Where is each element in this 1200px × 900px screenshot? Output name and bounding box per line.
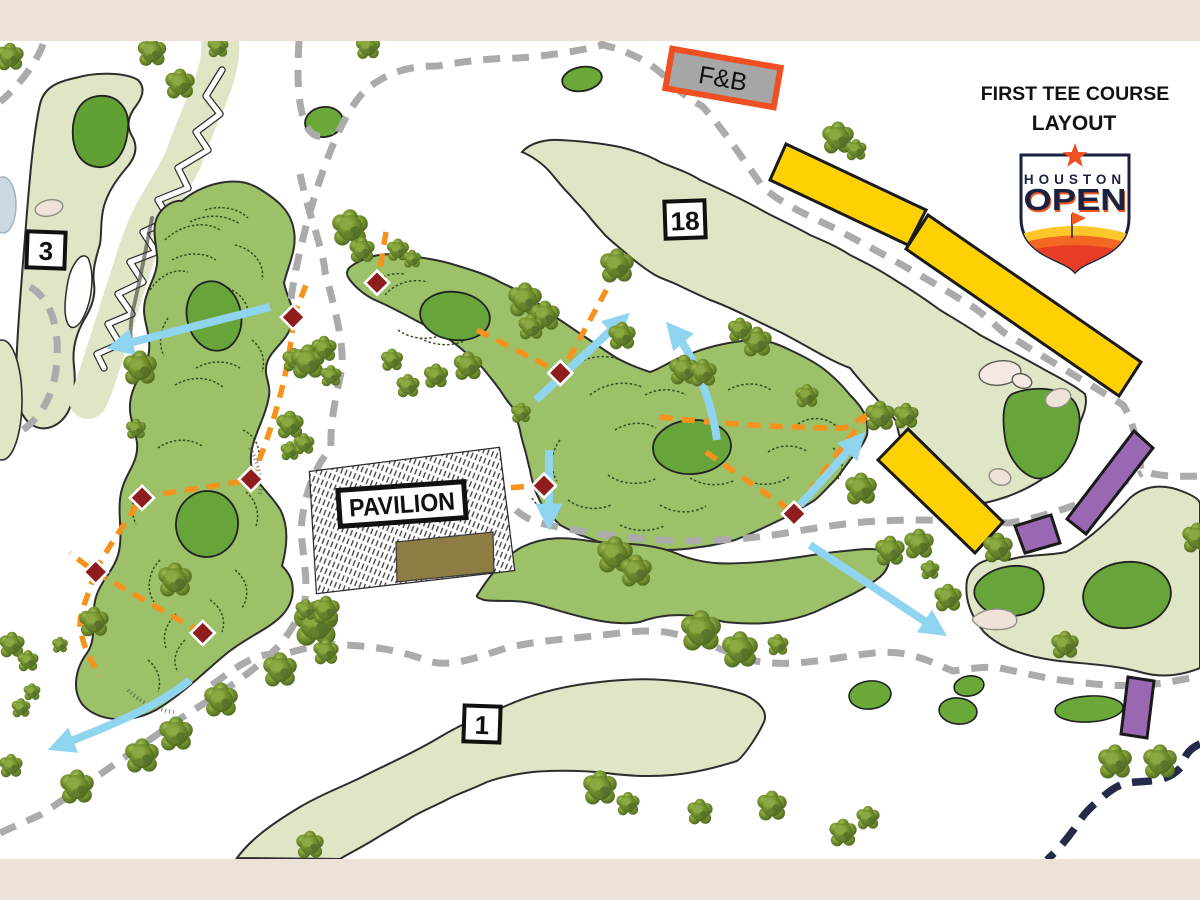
svg-text:FIRST TEE COURSE: FIRST TEE COURSE xyxy=(981,83,1170,105)
svg-text:OPEN: OPEN xyxy=(1024,182,1127,217)
svg-text:LAYOUT: LAYOUT xyxy=(1032,112,1117,135)
svg-text:1: 1 xyxy=(474,710,490,740)
svg-text:18: 18 xyxy=(670,206,700,237)
svg-text:3: 3 xyxy=(38,236,54,266)
